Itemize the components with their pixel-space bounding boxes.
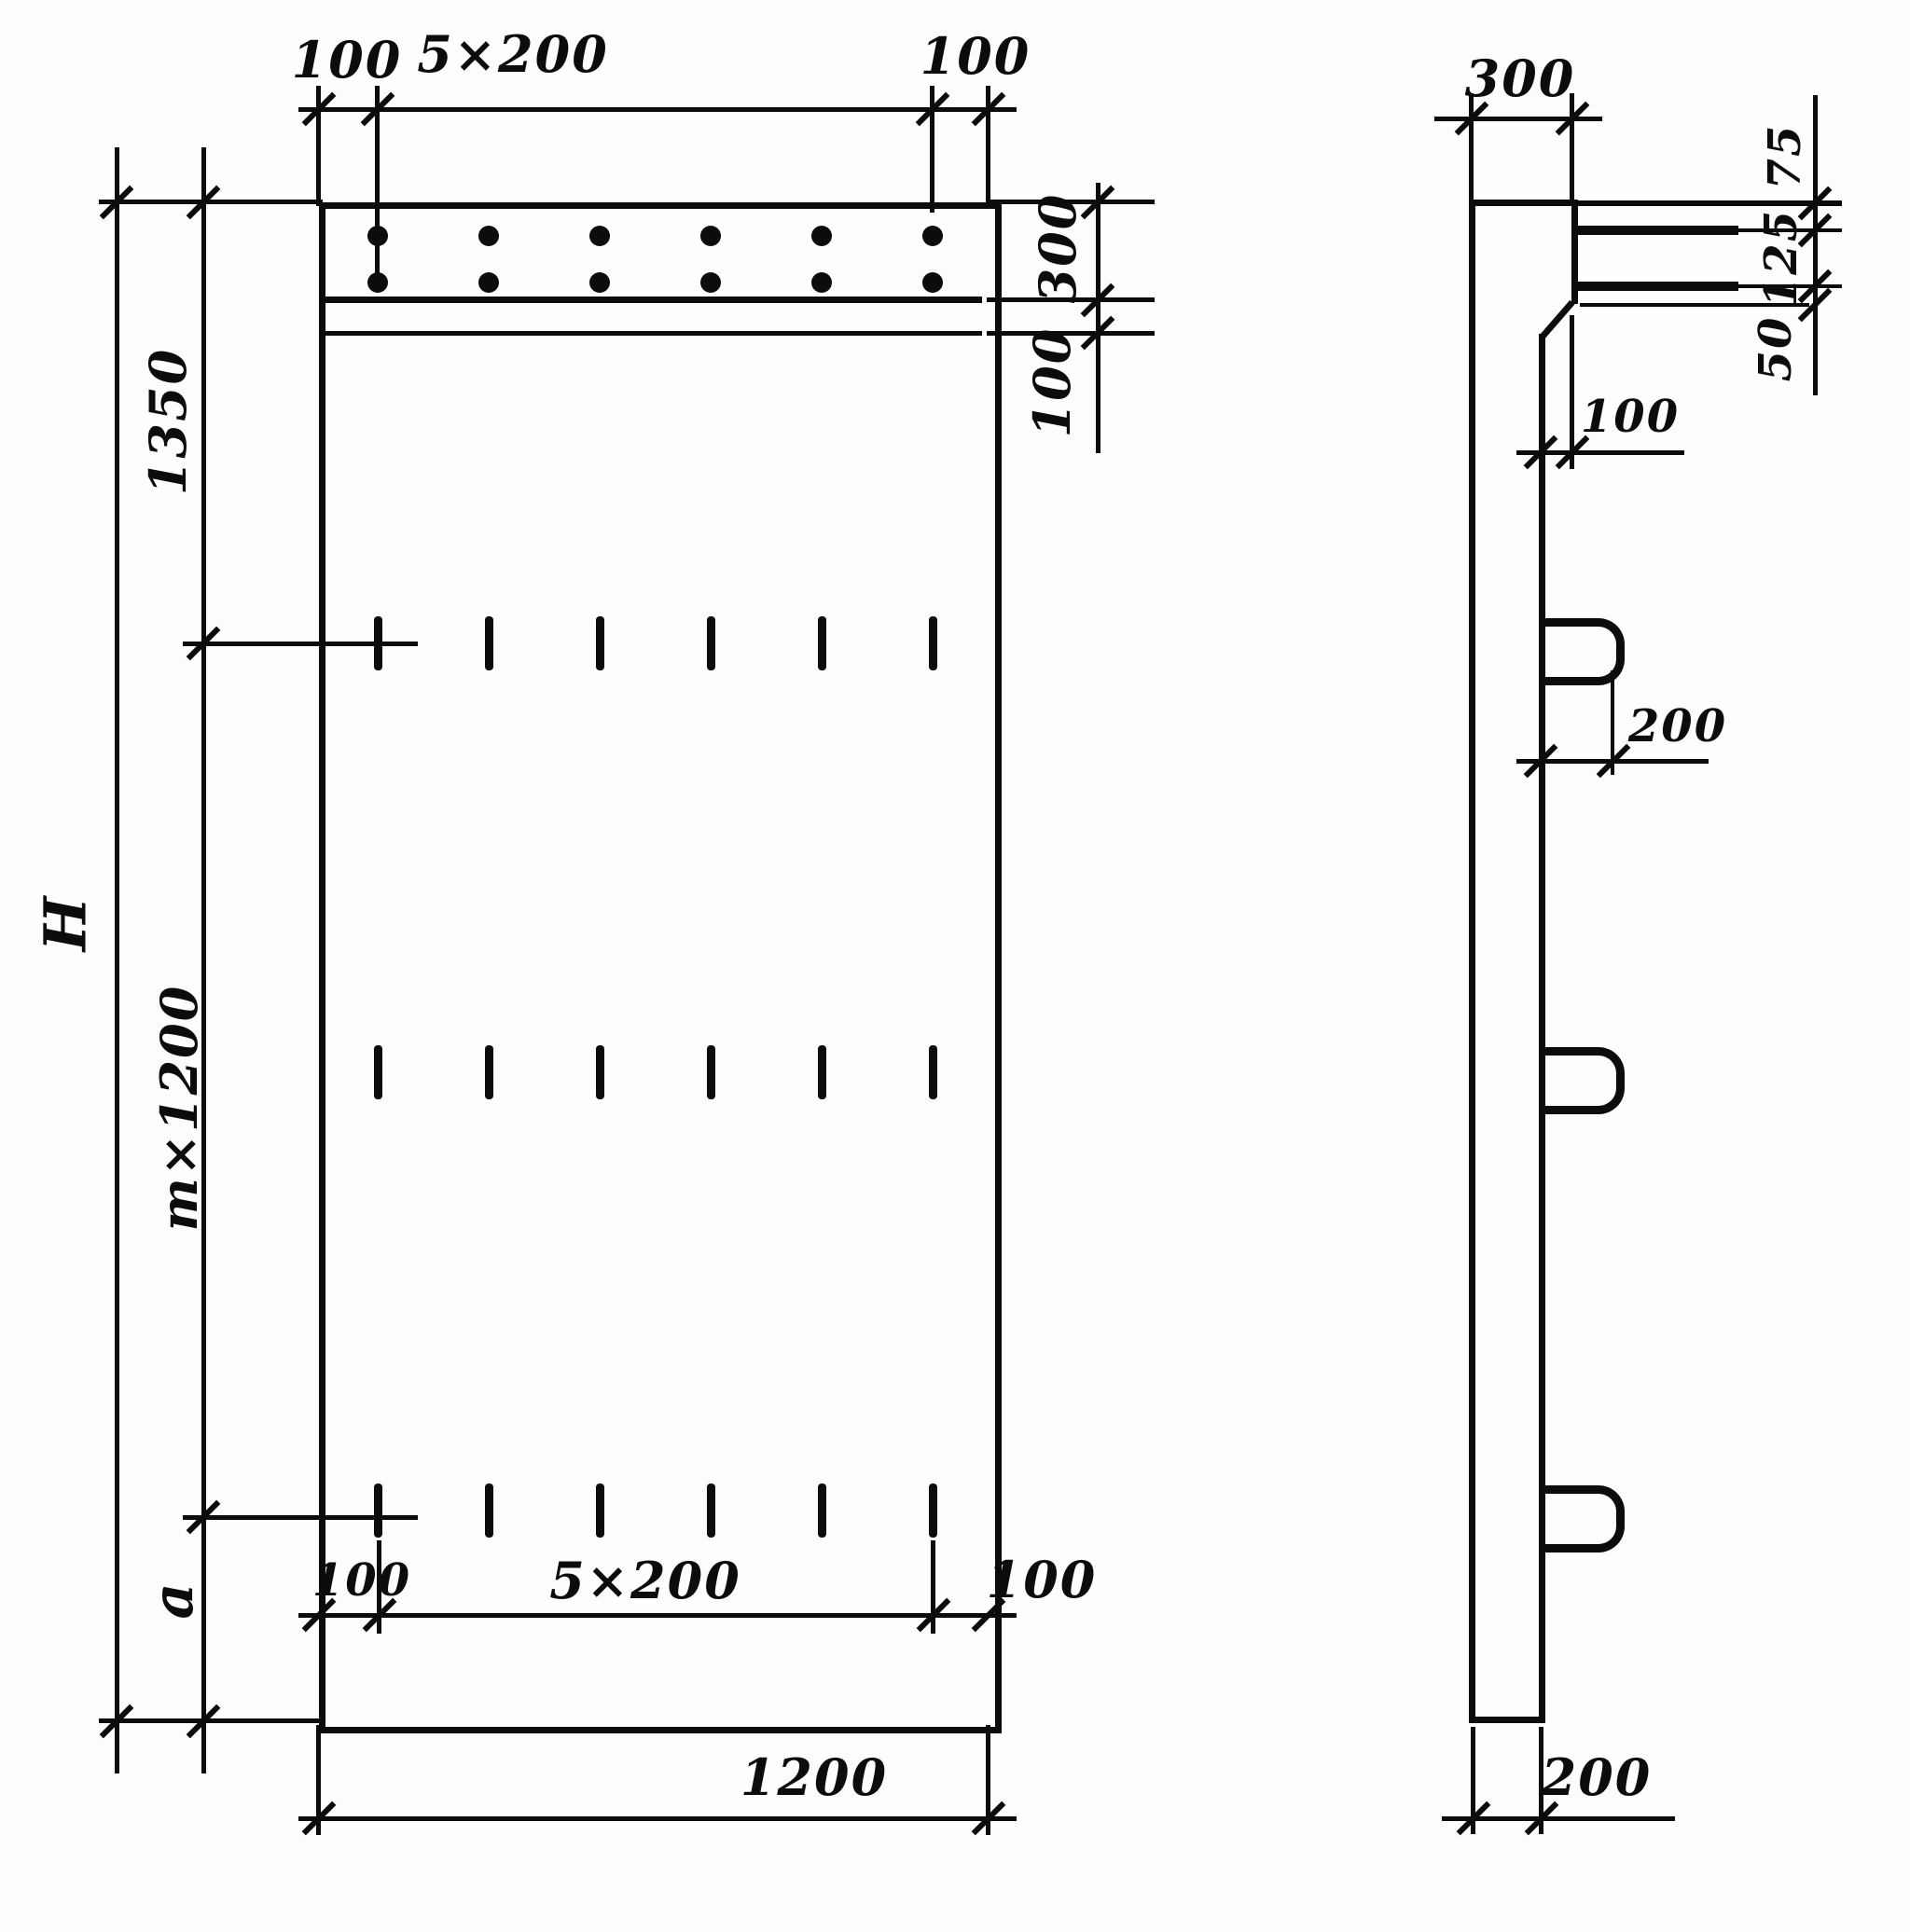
- dim-line-top: [298, 107, 1017, 112]
- dim-label-loop-200: 200: [1628, 700, 1727, 752]
- slot-dash: [818, 616, 826, 670]
- dim-line-left-chain: [201, 147, 206, 1773]
- dim-line-inner-bottom: [298, 1613, 1017, 1618]
- lifting-loop: [1543, 1047, 1625, 1114]
- rebar-dot: [589, 226, 610, 246]
- column-left-edge: [1469, 200, 1475, 1723]
- dim-label-side-300: 300: [1465, 48, 1576, 108]
- rebar-dot: [811, 272, 832, 293]
- dim-label-step-100: 100: [1581, 391, 1680, 443]
- dim-label-125: 125: [1755, 209, 1807, 308]
- slot-dash: [596, 1483, 604, 1538]
- rebar-dot: [478, 272, 499, 293]
- rebar-dot: [589, 272, 610, 293]
- slot-dash: [485, 1483, 493, 1538]
- extension-line: [99, 200, 323, 204]
- extension-line: [1570, 93, 1574, 203]
- rebar-dot: [478, 226, 499, 246]
- dim-label-top-right: 100: [920, 26, 1031, 86]
- column-bottom-edge: [1469, 1717, 1545, 1723]
- slot-dash: [374, 1045, 382, 1099]
- slot-dash: [818, 1483, 826, 1538]
- slot-dash: [929, 616, 937, 670]
- rib-bottom-line: [325, 297, 982, 303]
- drawing-sheet: 100 5×200 100 300 100 1350 H m×1200 a: [0, 0, 1910, 1932]
- extension-line: [99, 1718, 323, 1723]
- rebar-dot: [700, 272, 721, 293]
- slot-dash: [707, 616, 715, 670]
- rebar-dot: [922, 272, 943, 293]
- dim-label-50: 50: [1750, 316, 1802, 382]
- extension-line: [375, 86, 380, 283]
- rebar-dot: [700, 226, 721, 246]
- dim-label-top-mid: 5×200: [417, 24, 609, 84]
- dim-label-1200: 1200: [740, 1747, 888, 1807]
- dim-label-75: 75: [1759, 124, 1811, 190]
- extension-line: [183, 642, 418, 646]
- dowel-bar: [1578, 226, 1738, 235]
- dim-label-overall-H: H: [32, 895, 100, 952]
- panel-outline: [319, 202, 1002, 1733]
- slot-dash: [485, 1045, 493, 1099]
- slot-dash: [929, 1045, 937, 1099]
- top-edge-extension: [1578, 200, 1842, 206]
- dim-label-top-left: 100: [292, 30, 403, 90]
- slot-dash: [929, 1483, 937, 1538]
- column-right-upper-face: [1571, 200, 1578, 304]
- dowel-bar: [1578, 282, 1738, 291]
- rib-second-line: [325, 331, 982, 336]
- dim-label-band-gap: 100: [1022, 327, 1082, 438]
- dim-line-overall-height: [115, 147, 119, 1773]
- slot-dash: [485, 616, 493, 670]
- lifting-loop: [1543, 1485, 1625, 1552]
- dim-label-mx1200: m×1200: [149, 985, 209, 1232]
- extension-line: [1469, 93, 1474, 203]
- dim-label-band-height: 300: [1028, 193, 1087, 304]
- slot-dash: [707, 1483, 715, 1538]
- dim-label-a: a: [141, 1581, 206, 1620]
- slot-dash: [374, 1483, 382, 1538]
- dim-label-bot-mid: 5×200: [549, 1551, 741, 1610]
- slot-dash: [707, 1045, 715, 1099]
- dim-line-width: [298, 1816, 1017, 1821]
- slot-dash: [596, 1045, 604, 1099]
- extension-line: [183, 1515, 418, 1520]
- column-top-edge: [1469, 200, 1578, 206]
- dim-line-side-right-chain: [1813, 95, 1818, 395]
- dim-label-bottom-200: 200: [1542, 1747, 1653, 1807]
- dim-line-right-chain: [1096, 183, 1100, 453]
- rebar-dot: [811, 226, 832, 246]
- dim-label-bot-right: 100: [987, 1550, 1098, 1609]
- rebar-dot: [922, 226, 943, 246]
- dim-label-bot-left: 100: [312, 1554, 411, 1607]
- slot-dash: [818, 1045, 826, 1099]
- slot-dash: [596, 616, 604, 670]
- dim-label-1350: 1350: [138, 348, 198, 495]
